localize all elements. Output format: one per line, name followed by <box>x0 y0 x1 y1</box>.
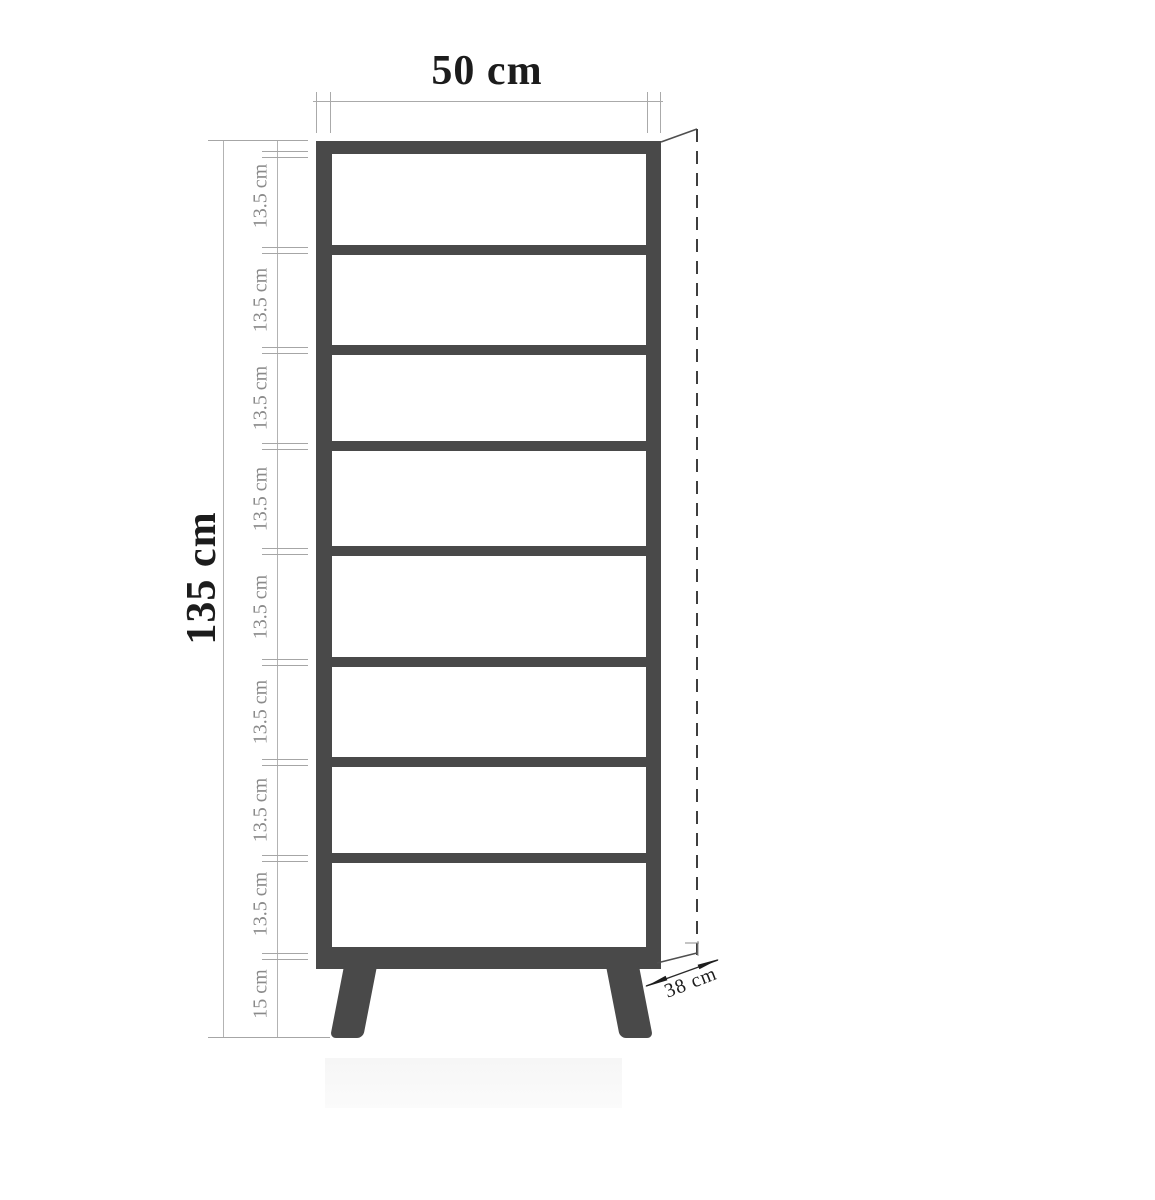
height-dimension-bottom-tick <box>208 1037 330 1038</box>
width-dimension-tick <box>330 92 331 133</box>
top-depth-edge-line <box>661 129 697 142</box>
width-dimension-tick <box>316 92 317 133</box>
height-dimension-line-inner <box>277 140 278 1038</box>
cabinet-left-panel <box>316 141 332 969</box>
width-dimension-tick <box>660 92 661 133</box>
cabinet-shelf <box>332 757 646 767</box>
product-dimension-diagram: 50 cm 135 cm 13.5 cm 13.5 cm 13.5 cm 13.… <box>0 0 1155 1200</box>
segment-boundary-tick <box>262 659 308 666</box>
bottom-depth-edge-line <box>657 953 697 963</box>
floor-shadow <box>325 1058 622 1108</box>
cabinet-top-panel <box>316 141 661 154</box>
compartment-height-label: 13.5 cm <box>250 268 273 332</box>
cabinet-shelf <box>332 441 646 451</box>
height-dimension-label: 135 cm <box>178 511 226 644</box>
leg-height-label: 15 cm <box>250 969 273 1018</box>
segment-boundary-tick <box>262 247 308 254</box>
cabinet-shelf <box>332 657 646 667</box>
compartment-height-label: 13.5 cm <box>250 778 273 842</box>
width-dimension-tick <box>647 92 648 133</box>
depth-dimension-label: 38 cm <box>661 963 720 1004</box>
compartment-height-label: 13.5 cm <box>250 467 273 531</box>
cabinet-right-leg <box>606 966 653 1038</box>
segment-boundary-tick <box>262 151 308 158</box>
height-dimension-top-tick <box>208 140 308 141</box>
compartment-height-label: 13.5 cm <box>250 164 273 228</box>
compartment-height-label: 13.5 cm <box>250 575 273 639</box>
compartment-height-label: 13.5 cm <box>250 872 273 936</box>
compartment-height-label: 13.5 cm <box>250 680 273 744</box>
compartment-height-label: 13.5 cm <box>250 366 273 430</box>
segment-boundary-tick <box>262 443 308 450</box>
segment-boundary-tick <box>262 347 308 354</box>
segment-boundary-tick <box>262 855 308 862</box>
width-dimension-label: 50 cm <box>431 47 542 95</box>
depth-projection-overlay <box>0 0 1155 1200</box>
cabinet-right-panel <box>646 141 661 969</box>
cabinet-shelf <box>332 853 646 863</box>
segment-boundary-tick <box>262 548 308 555</box>
cabinet-left-leg <box>330 966 377 1038</box>
segment-boundary-tick <box>262 759 308 766</box>
segment-boundary-tick <box>262 953 308 960</box>
width-dimension-line <box>313 101 663 102</box>
cabinet-shelf <box>332 245 646 255</box>
cabinet-shelf <box>332 546 646 556</box>
cabinet-shelf <box>332 345 646 355</box>
